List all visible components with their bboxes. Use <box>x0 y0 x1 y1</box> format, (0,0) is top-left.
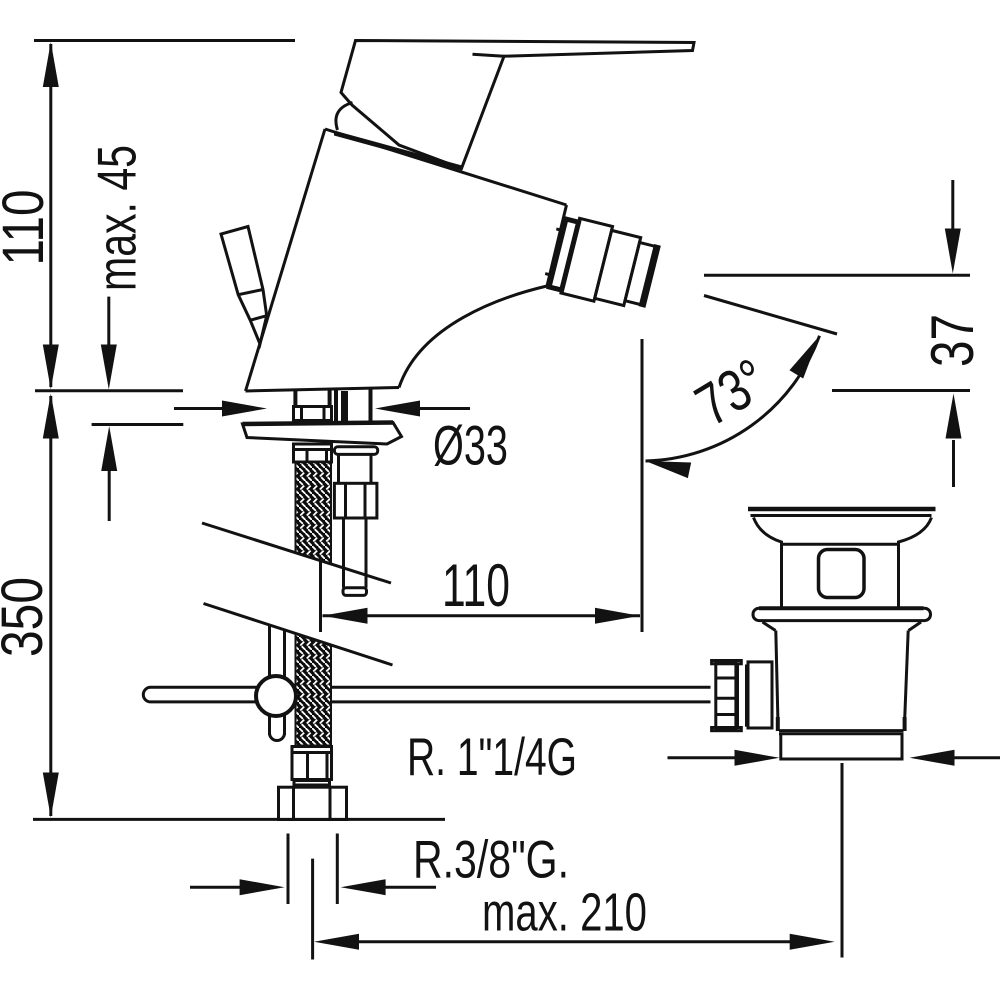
svg-text:110: 110 <box>0 190 56 266</box>
svg-text:350: 350 <box>0 577 55 657</box>
svg-text:110: 110 <box>442 552 510 619</box>
svg-text:max. 45: max. 45 <box>86 145 148 291</box>
svg-text:37: 37 <box>919 314 986 367</box>
svg-text:R.3/8"G.: R.3/8"G. <box>413 831 569 890</box>
svg-text:Ø33: Ø33 <box>433 414 508 477</box>
svg-text:max. 210: max. 210 <box>482 883 647 943</box>
svg-text:73°: 73° <box>685 346 779 439</box>
svg-text:R. 1"1/4G: R. 1"1/4G <box>407 728 577 787</box>
